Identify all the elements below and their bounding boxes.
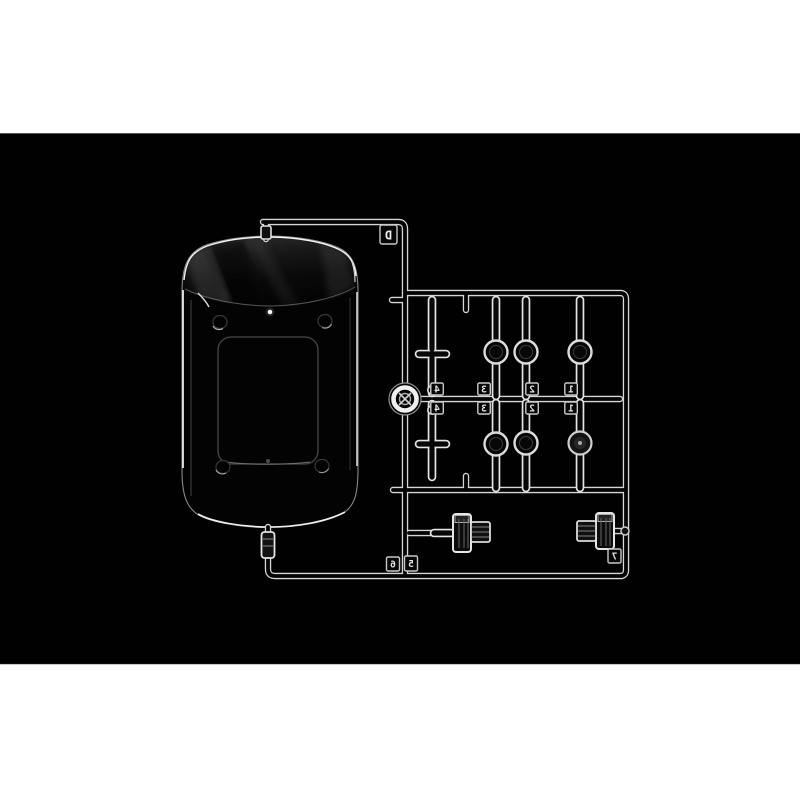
lens-lower-mid bbox=[515, 432, 538, 455]
center-pin-highlight bbox=[268, 310, 273, 315]
headlight-ring-part bbox=[389, 383, 421, 415]
clear-roof-panel-part bbox=[182, 236, 358, 528]
number-tag-6: 6 bbox=[390, 560, 396, 571]
number-tag-4-lower: 4 bbox=[434, 403, 440, 414]
photo-bottom-edge bbox=[0, 663, 800, 664]
number-tag-1-upper: 1 bbox=[568, 384, 574, 395]
number-tag-4-upper: 4 bbox=[434, 384, 440, 395]
number-tag-7: 7 bbox=[612, 552, 618, 563]
number-tag-3-upper: 3 bbox=[481, 384, 487, 395]
top-gate-tab bbox=[261, 226, 271, 239]
lens-upper-left bbox=[485, 341, 508, 364]
lens-lower-left bbox=[485, 433, 508, 456]
lens-upper-right bbox=[569, 341, 592, 364]
sprue-letter-tag-d: D bbox=[380, 225, 397, 244]
gate-letter-text: D bbox=[385, 229, 392, 243]
number-tag-2-lower: 2 bbox=[529, 403, 535, 414]
sprue-photo-canvas: D 4 3 2 1 4 3 2 1 6 5 7 bbox=[0, 0, 800, 800]
product-photo: D 4 3 2 1 4 3 2 1 6 5 7 bbox=[0, 0, 800, 800]
number-tag-2-upper: 2 bbox=[529, 384, 535, 395]
runner-nub bbox=[621, 527, 629, 535]
number-tag-1-lower: 1 bbox=[568, 403, 574, 414]
number-tag-3-lower: 3 bbox=[481, 403, 487, 414]
bottom-gate-tab bbox=[262, 532, 275, 558]
windshield-reflection-band bbox=[183, 237, 357, 307]
lens-upper-mid bbox=[515, 341, 538, 364]
photo-top-edge bbox=[0, 133, 800, 134]
number-tag-5: 5 bbox=[408, 559, 414, 570]
lens-lower-right bbox=[569, 432, 592, 455]
